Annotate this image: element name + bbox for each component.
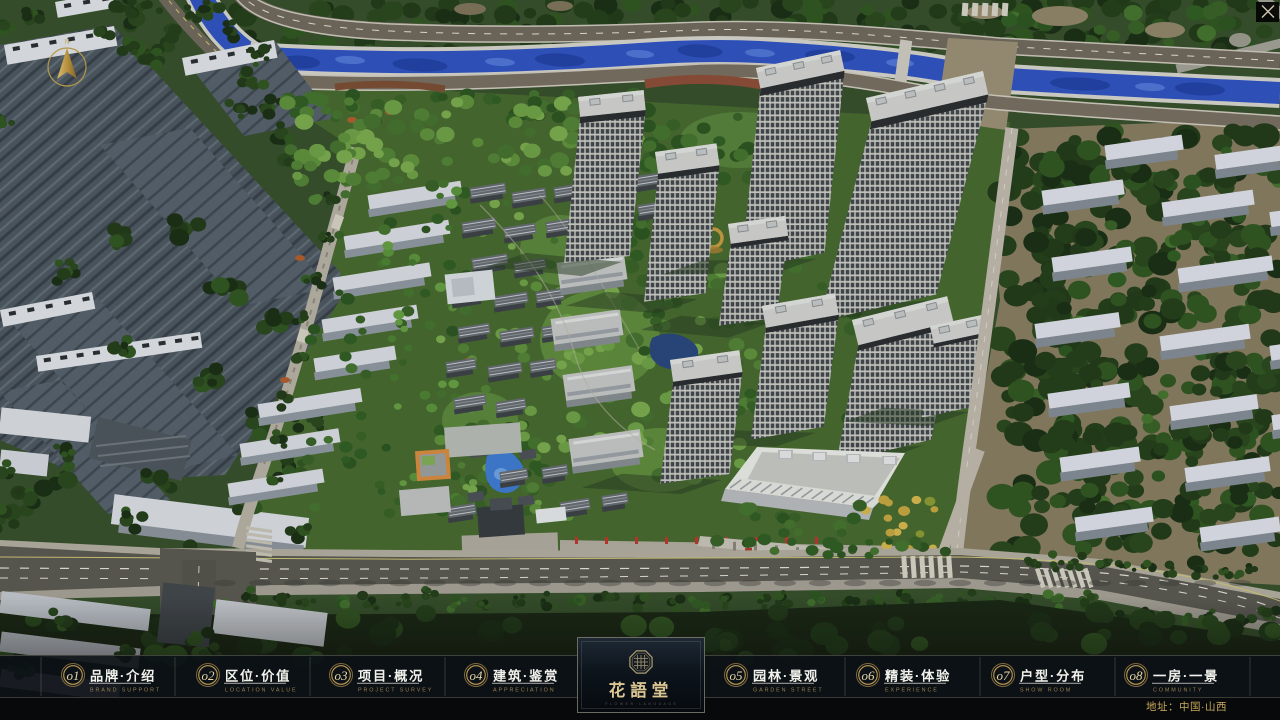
svg-text:精装·体验: 精装·体验 <box>885 668 951 684</box>
svg-text:园林·景观: 园林·景观 <box>753 668 819 684</box>
svg-text:品牌·介绍: 品牌·介绍 <box>90 668 156 684</box>
svg-text:LOCATION VALUE: LOCATION VALUE <box>225 688 298 694</box>
svg-text:o7: o7 <box>997 668 1011 683</box>
svg-text:建筑·鉴赏: 建筑·鉴赏 <box>493 668 559 684</box>
svg-text:o5: o5 <box>730 668 744 683</box>
svg-text:BRAND SUPPORT: BRAND SUPPORT <box>90 688 161 694</box>
svg-text:项目·概况: 项目·概况 <box>358 668 424 684</box>
svg-text:SHOW ROOM: SHOW ROOM <box>1020 688 1072 694</box>
svg-text:o4: o4 <box>470 668 484 683</box>
svg-text:o3: o3 <box>335 668 349 683</box>
svg-text:一房·一景: 一房·一景 <box>1153 668 1219 684</box>
svg-text:COMMUNITY: COMMUNITY <box>1153 688 1203 694</box>
svg-text:户型·分布: 户型·分布 <box>1020 668 1086 684</box>
svg-text:o6: o6 <box>862 668 876 683</box>
svg-text:o8: o8 <box>1130 668 1144 683</box>
svg-text:o2: o2 <box>202 668 216 683</box>
svg-text:花語堂: 花語堂 <box>609 680 674 700</box>
svg-text:GARDEN STREET: GARDEN STREET <box>753 688 824 694</box>
svg-text:PROJECT SURVEY: PROJECT SURVEY <box>358 688 433 694</box>
svg-text:区位·价值: 区位·价值 <box>225 668 291 684</box>
svg-text:地址：中国·山西: 地址：中国·山西 <box>1146 700 1227 713</box>
svg-text:APPRECIATION: APPRECIATION <box>493 688 556 694</box>
svg-text:EXPERIENCE: EXPERIENCE <box>885 688 939 694</box>
svg-text:F L O W E R · L A N G U A G E: F L O W E R · L A N G U A G E <box>605 702 676 706</box>
svg-text:o1: o1 <box>67 668 80 683</box>
